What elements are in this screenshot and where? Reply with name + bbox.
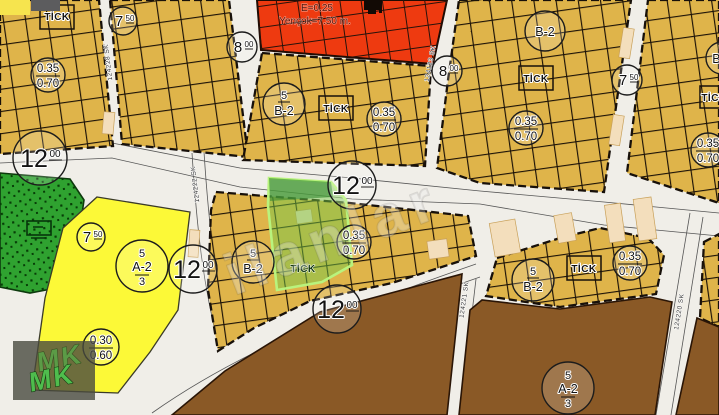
width-sup: 00 <box>245 40 254 49</box>
zone-circle-b2: B-2 <box>525 11 565 51</box>
width-main: 7 <box>83 229 91 246</box>
road-width-7-50: 7 50 <box>109 7 137 35</box>
width-sup: 00 <box>346 300 358 311</box>
width-sup: 00 <box>450 64 459 73</box>
width-sup: 00 <box>361 176 373 187</box>
width-main: 12 <box>173 256 201 284</box>
width-main: 12 <box>317 296 345 324</box>
topleft-gray-fragment <box>31 0 60 11</box>
ratio-bottom: 0.70 <box>373 122 395 134</box>
ratio-top: 0.35 <box>373 107 395 119</box>
zone-bottom: 3 <box>565 398 571 410</box>
width-main: 8 <box>439 63 447 80</box>
zone-circle-5-b2: 5 B-2 <box>263 83 305 125</box>
zone-bottom: B-2 <box>274 104 294 118</box>
width-main: 7 <box>115 13 123 30</box>
width-main: 7 <box>619 72 627 89</box>
road-width-8-00: 8 00 <box>227 32 257 62</box>
width-main: 12 <box>20 145 48 173</box>
ratio-top: 0.35 <box>697 138 719 150</box>
ratio-top: 0.35 <box>37 63 59 75</box>
red-zone-e-label: E=0.25 <box>301 3 333 14</box>
tick-label: TİCK <box>701 91 719 104</box>
road-width-7-50: 7 50 <box>77 223 105 251</box>
zone-top: 5 <box>565 370 571 382</box>
ratio-bottom: 0.70 <box>619 266 641 278</box>
building-footprint <box>489 219 521 257</box>
logo-watermark: MK MK <box>13 337 95 400</box>
ratio-circle: 0.35 0.70 <box>31 58 65 92</box>
tick-label: TİCK <box>44 10 70 23</box>
width-sup: 50 <box>126 14 135 23</box>
road-width-12-00: 12 00 <box>313 285 361 333</box>
width-sup: 50 <box>630 73 639 82</box>
road-width-8-00: 8 00 <box>432 56 462 86</box>
tick-label: TİCK <box>571 262 597 275</box>
zoning-map-svg: TİCK E=0.25 Yençok=7.50 m. TİCK TİCK TİC… <box>0 0 719 415</box>
zone-circle-5-a2-3: 5 A-2 3 <box>116 240 168 292</box>
ratio-bottom: 0.70 <box>37 78 59 90</box>
building-footprint <box>102 112 115 135</box>
zone-top: 5 <box>139 248 145 260</box>
building-footprint <box>427 239 449 260</box>
width-sup: 00 <box>49 149 61 160</box>
zone-bottom: B-2 <box>523 280 543 294</box>
width-sup: 50 <box>94 230 103 239</box>
ratio-bottom: 0.70 <box>515 131 537 143</box>
ratio-circle: 0.35 0.70 <box>613 246 647 280</box>
topleft-yellow-fragment <box>0 0 30 15</box>
ratio-top: 0.35 <box>619 251 641 263</box>
zone-label: B-2 <box>535 25 555 39</box>
road-width-7-50: 7 50 <box>612 65 642 95</box>
zone-mid: A-2 <box>132 260 152 274</box>
width-main: 8 <box>234 39 242 56</box>
ratio-circle: 0.35 0.70 <box>367 102 401 136</box>
zone-top: 5 <box>530 266 536 278</box>
zone-mid: A-2 <box>558 382 578 396</box>
ratio-circle: 0.35 0.70 <box>509 111 543 145</box>
road-width-12-00: 12 00 <box>13 131 67 185</box>
zone-label: B-2 <box>712 52 719 66</box>
zone-circle-5-a2-3: 5 A-2 3 <box>542 362 594 414</box>
zone-top: 5 <box>281 90 287 102</box>
width-sup: 00 <box>202 260 214 271</box>
zone-bottom: 3 <box>139 276 145 288</box>
road-width-12-00: 12 00 <box>169 245 217 293</box>
ratio-circle: 0.35 0.70 <box>691 133 719 167</box>
tick-label: TİCK <box>323 102 349 115</box>
ratio-top: 0.35 <box>515 116 537 128</box>
tick-label: TİCK <box>523 72 549 85</box>
red-zone-height-label: Yençok=7.50 m. <box>279 16 351 27</box>
zoning-map-image: TİCK E=0.25 Yençok=7.50 m. TİCK TİCK TİC… <box>0 0 719 415</box>
zone-circle-5-b2: 5 B-2 <box>512 259 554 301</box>
ratio-bottom: 0.70 <box>697 153 719 165</box>
